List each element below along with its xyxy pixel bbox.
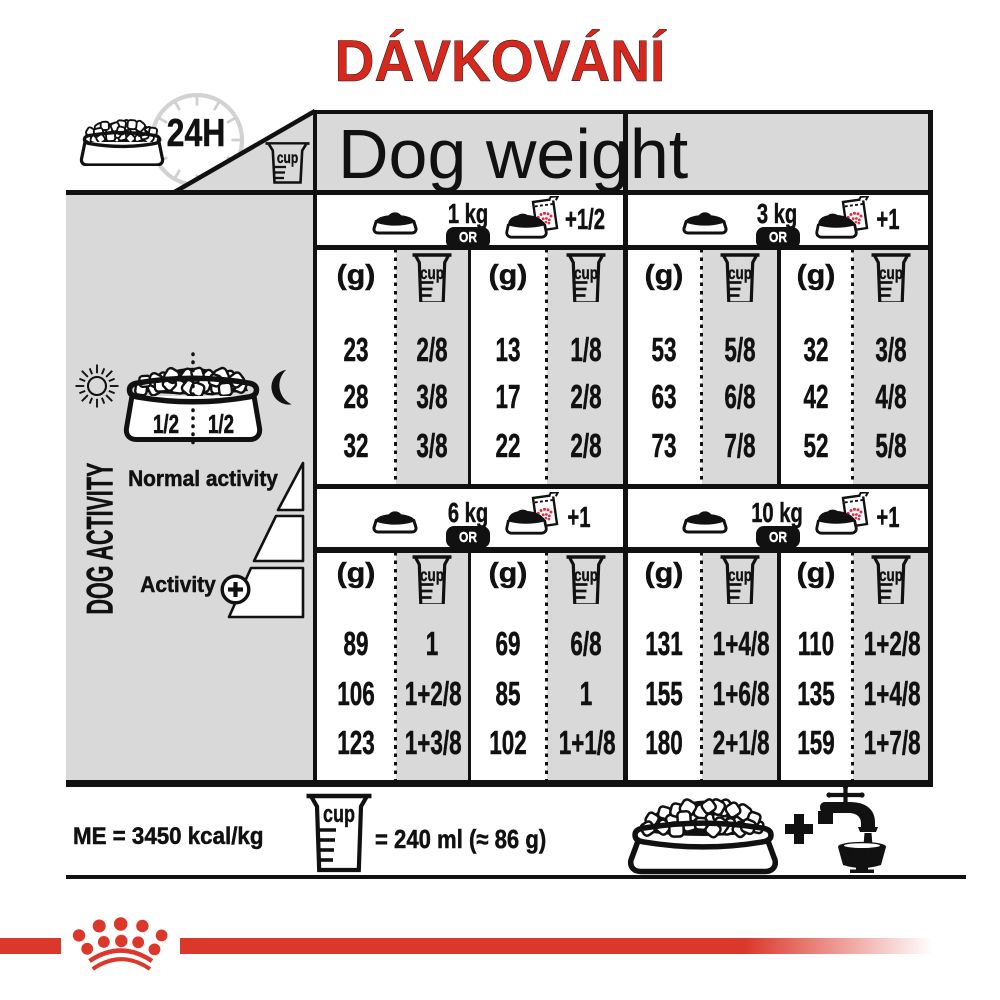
- svg-text:cup: cup: [323, 802, 355, 828]
- svg-text:1/2: 1/2: [153, 409, 179, 439]
- svg-text:cup: cup: [420, 566, 444, 585]
- svg-text:cup: cup: [277, 148, 299, 166]
- svg-text:cup: cup: [574, 264, 598, 283]
- svg-text:1/2: 1/2: [208, 409, 234, 439]
- svg-text:cup: cup: [420, 264, 444, 283]
- svg-text:cup: cup: [879, 566, 903, 585]
- svg-text:cup: cup: [728, 264, 752, 283]
- svg-text:cup: cup: [879, 264, 903, 283]
- svg-text:cup: cup: [574, 566, 598, 585]
- svg-text:cup: cup: [728, 566, 752, 585]
